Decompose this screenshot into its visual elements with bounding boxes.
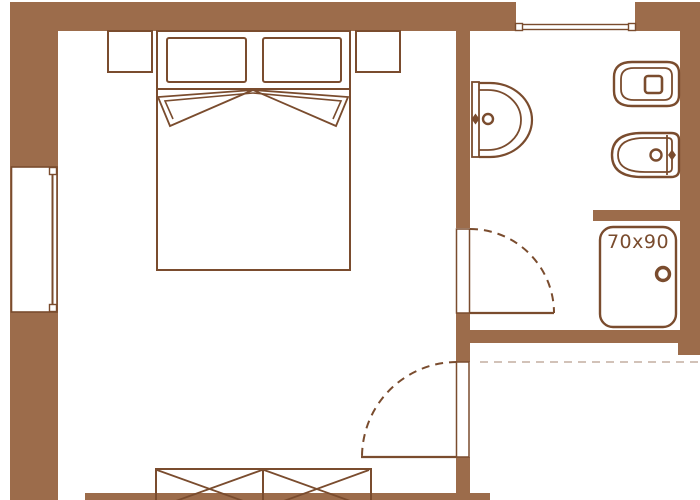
- bidet-inner: [618, 138, 672, 172]
- bathroom-door-swing: [470, 229, 554, 313]
- wall-bathroom-bottom: [470, 330, 680, 343]
- shower: 70x90: [600, 227, 676, 327]
- blanket-fold-right-inner: [253, 93, 341, 119]
- window-left: [12, 167, 58, 312]
- window-top-frame-end-left: [516, 24, 523, 31]
- pillow-right: [263, 38, 341, 82]
- toilet-flush-icon: [645, 76, 662, 93]
- double-bed: [157, 31, 350, 270]
- wall-right-stub: [678, 343, 700, 355]
- bidet-tap-icon: [668, 150, 676, 161]
- wall-shower-stub: [593, 210, 680, 221]
- blanket-fold-right: [253, 90, 348, 126]
- wall-top-right: [635, 2, 700, 31]
- pillow-left: [167, 38, 246, 82]
- window-left-frame-end-top: [50, 168, 57, 175]
- bathroom-door-jamb: [457, 229, 470, 313]
- bedroom-door-jamb: [457, 362, 470, 457]
- bidet: [612, 133, 679, 177]
- bedroom-door-swing: [362, 362, 457, 457]
- window-top: [516, 0, 636, 31]
- wall-right: [680, 31, 700, 343]
- blanket-fold-left: [158, 90, 253, 126]
- toilet: [614, 62, 679, 106]
- bedroom-door: [361, 362, 469, 457]
- window-left-opening: [12, 167, 58, 312]
- shower-drain-icon: [657, 268, 670, 281]
- washbasin-bowl-inner: [479, 90, 521, 150]
- toilet-inner: [621, 68, 672, 100]
- bathroom-door: [457, 229, 555, 313]
- floor-plan: 70x90: [0, 0, 700, 500]
- wall-top-left: [10, 2, 516, 31]
- washbasin-drain-icon: [483, 114, 493, 124]
- bed-outline: [157, 31, 350, 270]
- wall-partition-middle: [456, 313, 470, 362]
- window-top-glass-line: [520, 25, 631, 30]
- nightstand-left: [108, 31, 152, 72]
- wall-partition-upper: [456, 31, 470, 228]
- window-top-frame-end-right: [629, 24, 636, 31]
- nightstand-right: [356, 31, 400, 72]
- window-left-frame-end-bottom: [50, 305, 57, 312]
- bidet-drain-icon: [651, 150, 662, 161]
- washbasin: [472, 82, 533, 157]
- walls: [10, 2, 700, 500]
- shower-size-label: 70x90: [607, 231, 669, 253]
- floor-plan-drawing: 70x90: [0, 0, 700, 500]
- blanket-fold-left-inner: [165, 93, 253, 119]
